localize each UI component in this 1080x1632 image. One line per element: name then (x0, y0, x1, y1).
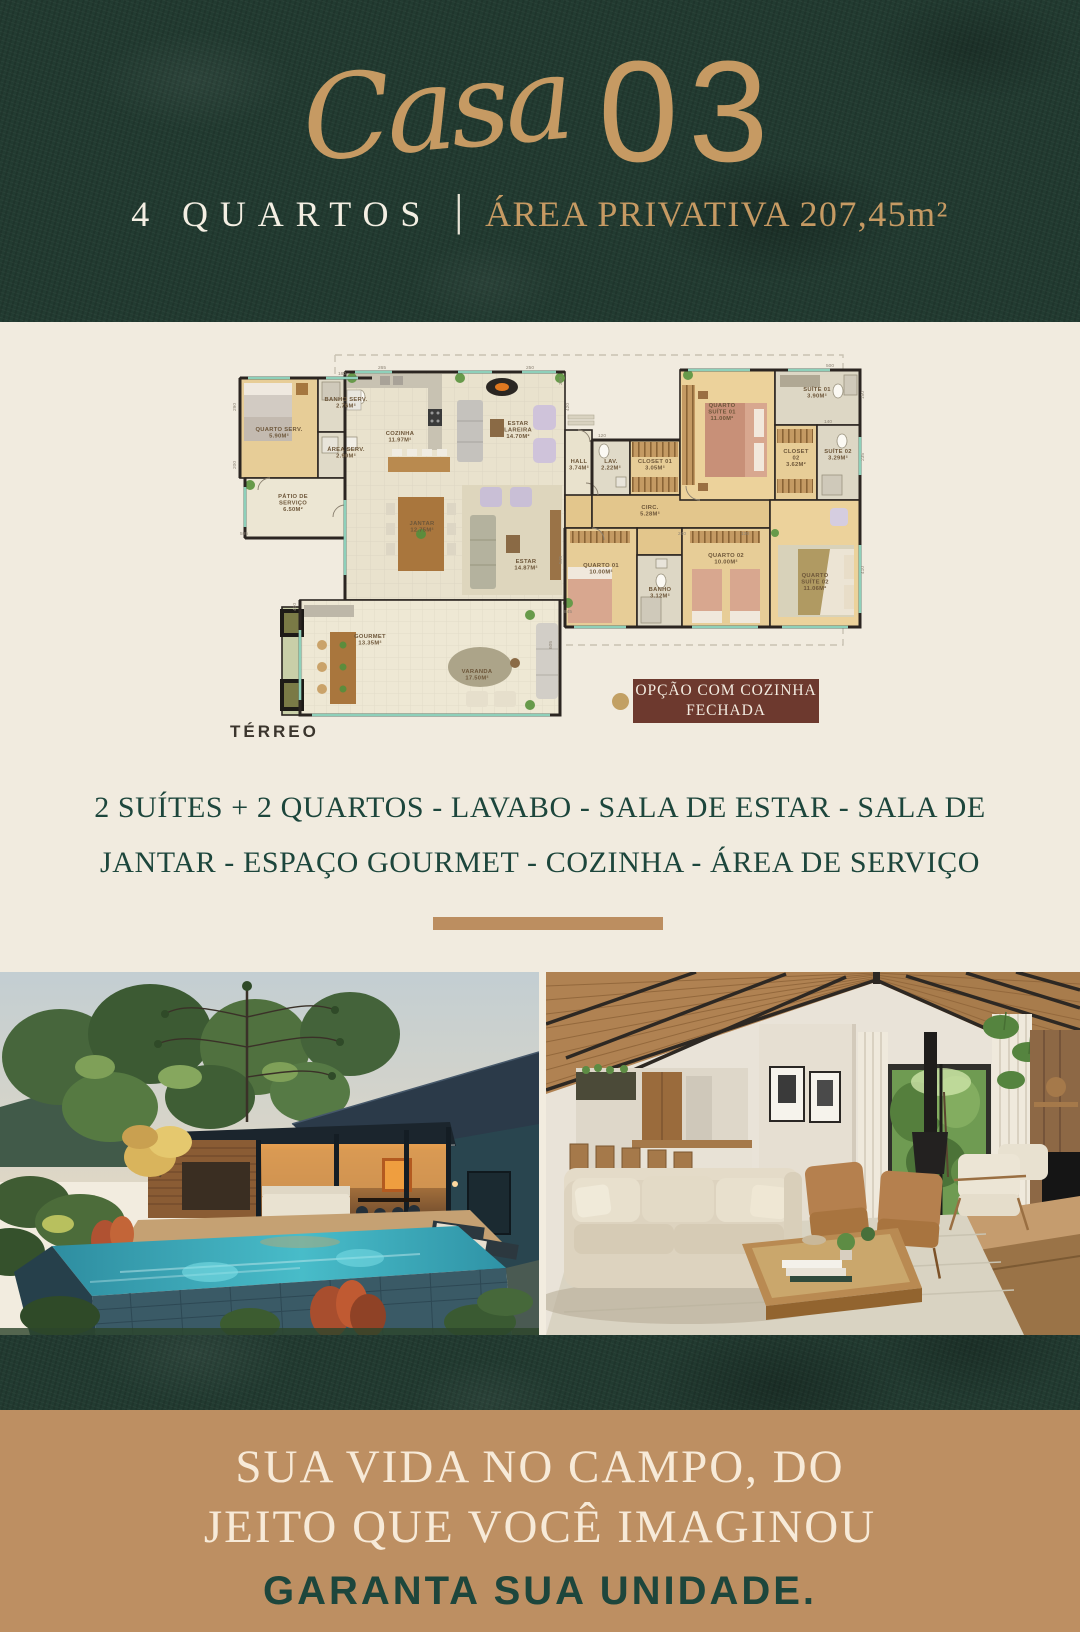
dim-label: 420 (565, 403, 571, 411)
dim-label: 235 (860, 453, 866, 461)
room-label-estar-lareira: ESTARLAREIRA14.70M² (504, 421, 532, 440)
footer-band: SUA VIDA NO CAMPO, DO JEITO QUE VOCÊ IMA… (0, 1410, 1080, 1632)
dim-label: 845 (564, 609, 572, 615)
features-list: 2 SUÍTES + 2 QUARTOS - LAVABO - SALA DE … (0, 780, 1080, 890)
dim-label: 250 (526, 365, 534, 371)
dim-label: 160 (338, 371, 346, 377)
floor-level-label: TÉRREO (230, 722, 319, 742)
dim-label: 140 (824, 419, 832, 425)
header-banner: Casa 03 4 QUARTOS | ÁREA PRIVATIVA 207,4… (0, 0, 1080, 322)
floorplan-wrap: QUARTO SERV.5.90M²BANHO SERV.2.76M²ÁREA … (230, 345, 870, 725)
dim-label: 240 (678, 531, 686, 537)
bedrooms-label: 4 QUARTOS (131, 193, 432, 235)
room-label-cozinha: COZINHA11.97M² (386, 431, 415, 444)
room-label-suite-02: SUÍTE 023.29M² (824, 447, 852, 462)
features-line-1: 2 SUÍTES + 2 QUARTOS - LAVABO - SALA DE … (0, 780, 1080, 835)
flyer-page: Casa 03 4 QUARTOS | ÁREA PRIVATIVA 207,4… (0, 0, 1080, 1632)
photo-interior-living (546, 972, 1080, 1335)
badge-line-1: OPÇÃO COM COZINHA (633, 681, 819, 701)
dim-label: 545 (558, 556, 564, 564)
dim-label: 150 (860, 391, 866, 399)
title-row: Casa 03 (0, 40, 1080, 184)
subtitle-separator: | (454, 185, 463, 236)
dim-label: 120 (598, 433, 606, 439)
dim-label: 200 (232, 461, 238, 469)
room-label-jantar: JANTAR12.75M² (410, 521, 435, 534)
badge-line-2: FECHADA (633, 701, 819, 721)
room-label-quarto-suite-01: QUARTOSUÍTE 0111.00M² (708, 403, 736, 422)
room-label-estar: ESTAR14.87M² (514, 559, 537, 572)
dim-label: 410 (860, 566, 866, 574)
dim-label: 350 (558, 377, 564, 385)
footer-cta: GARANTA SUA UNIDADE. (0, 1569, 1080, 1614)
floorplan-terreo: QUARTO SERV.5.90M²BANHO SERV.2.76M²ÁREA … (230, 345, 870, 725)
photo-exterior-pool-dusk (0, 972, 539, 1335)
dim-label: 400 (292, 603, 298, 611)
title-unit-number: 03 (598, 40, 778, 184)
badge-dot (612, 693, 629, 710)
dim-label: 290 (232, 403, 238, 411)
room-label-hall: HALL3.74M² (569, 459, 589, 472)
footer-headline-line-2: JEITO QUE VOCÊ IMAGINOU (0, 1498, 1080, 1558)
room-label-banho: BANHO3.12M² (649, 587, 672, 600)
dim-label: 500 (826, 363, 834, 369)
dim-label: 605 (548, 641, 554, 649)
footer-headline: SUA VIDA NO CAMPO, DO JEITO QUE VOCÊ IMA… (0, 1410, 1080, 1557)
features-line-2: JANTAR - ESPAÇO GOURMET - COZINHA - ÁREA… (0, 835, 1080, 890)
exterior-render-illustration (0, 972, 539, 1335)
room-label-circ: CIRC.5.28M² (640, 505, 660, 518)
gold-divider (433, 917, 663, 930)
dim-label: 130 (741, 531, 749, 537)
title-script-word: Casa (296, 29, 573, 185)
interior-render-illustration (546, 972, 1080, 1335)
private-area-label: ÁREA PRIVATIVA 207,45m² (485, 193, 949, 235)
room-label-quarto-suite-02: QUARTOSUÍTE 0211.06M² (801, 573, 829, 592)
closed-kitchen-option-badge: OPÇÃO COM COZINHA FECHADA (633, 679, 819, 723)
subtitle-row: 4 QUARTOS | ÁREA PRIVATIVA 207,45m² (0, 188, 1080, 239)
room-label-gourmet: GOURMET13.35M² (354, 634, 386, 647)
renders-row (0, 972, 1080, 1335)
dim-label: 265 (378, 365, 386, 371)
green-band (0, 1335, 1080, 1410)
footer-headline-line-1: SUA VIDA NO CAMPO, DO (0, 1438, 1080, 1498)
dim-label: 595 (240, 531, 248, 537)
room-label-varanda: VARANDA17.50M² (462, 669, 493, 682)
